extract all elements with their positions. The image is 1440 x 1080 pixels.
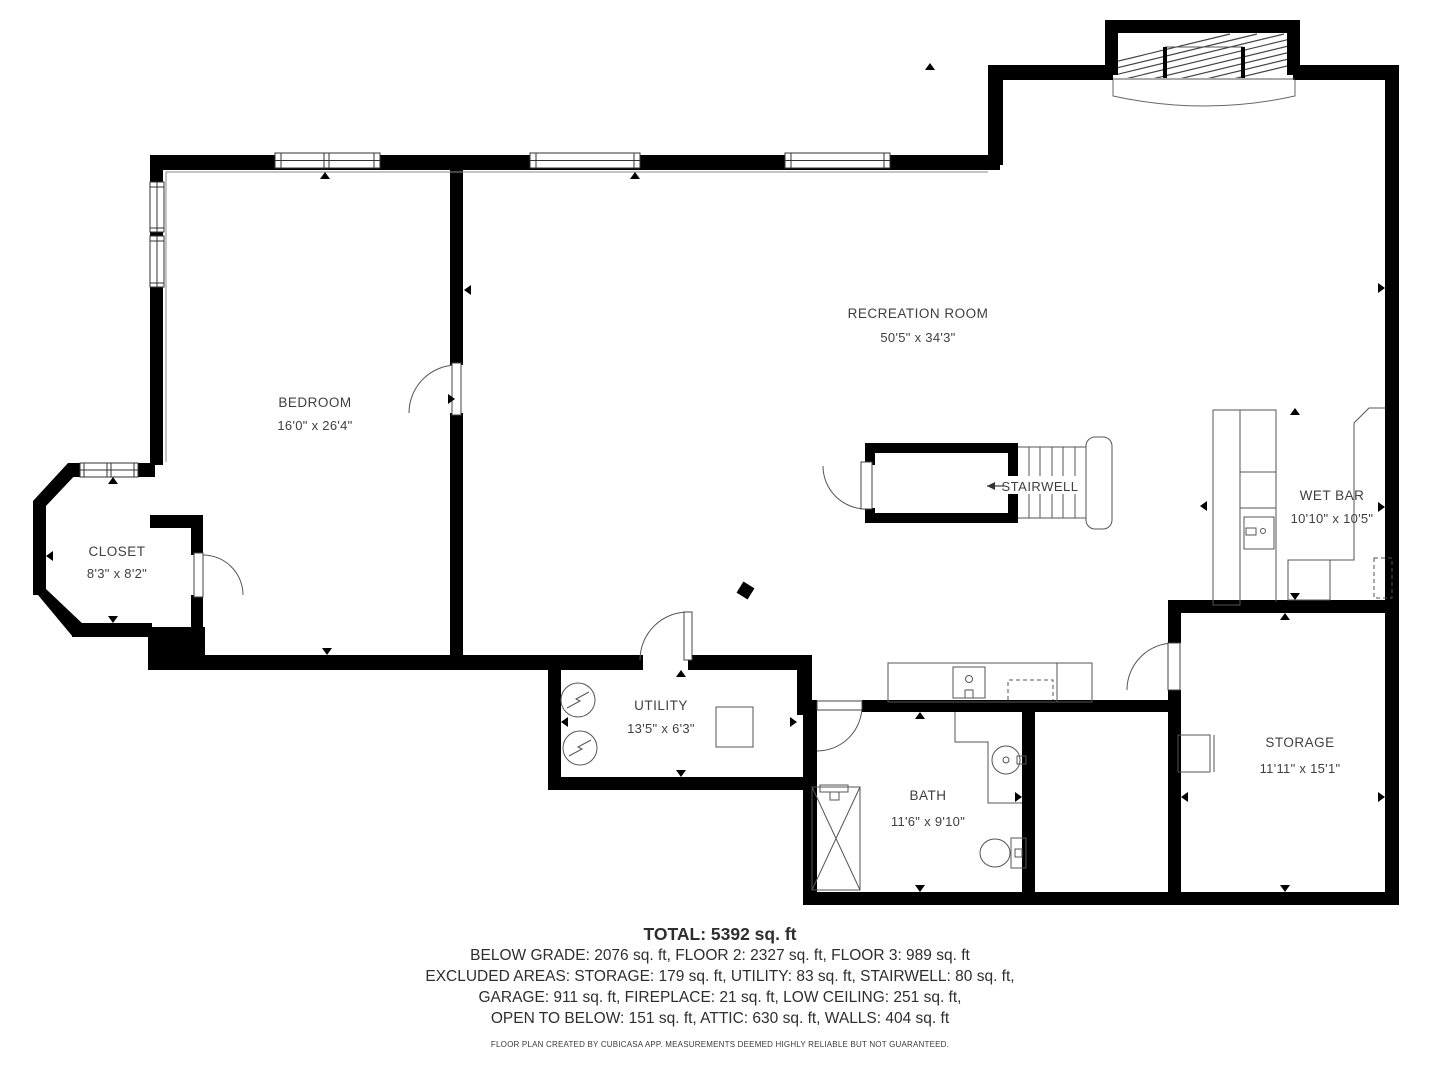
bedroom-door: [409, 363, 461, 415]
bath-name: BATH: [909, 788, 946, 803]
total-area: TOTAL: 5392 sq. ft: [0, 924, 1440, 945]
label-wet-bar: WET BAR 10'10" x 10'5": [1291, 488, 1374, 526]
column-icon: [737, 582, 755, 600]
closet-dims: 8'3" x 8'2": [87, 566, 147, 581]
label-closet: CLOSET 8'3" x 8'2": [87, 544, 147, 581]
stair-direction-arrow-icon: [987, 482, 995, 490]
storage-name: STORAGE: [1265, 735, 1334, 750]
recreation-dims: 50'5" x 34'3": [880, 330, 955, 345]
bath-sink-icon: [992, 746, 1020, 774]
bedroom-name: BEDROOM: [278, 395, 351, 410]
disclaimer: FLOOR PLAN CREATED BY CUBICASA APP. MEAS…: [0, 1040, 1440, 1049]
storage-door: [1127, 643, 1180, 690]
closet-door: [194, 553, 243, 597]
window: [275, 153, 380, 168]
bar-sink-icon: [1244, 517, 1274, 549]
interior-walls: [450, 168, 1018, 670]
bath-door: [817, 701, 862, 751]
window: [150, 236, 164, 287]
stairwell-name: STAIRWELL: [1002, 479, 1079, 494]
floor-plan-drawing: BEDROOM 16'0" x 26'4" CLOSET 8'3" x 8'2"…: [0, 0, 1440, 1080]
bath-dims: 11'6" x 9'10": [891, 814, 965, 829]
area-summary: TOTAL: 5392 sq. ft BELOW GRADE: 2076 sq.…: [0, 924, 1440, 1049]
storage-shelf: [1178, 735, 1214, 772]
label-recreation-room: RECREATION ROOM 50'5" x 34'3": [848, 306, 989, 345]
utility-name: UTILITY: [634, 698, 688, 713]
storage-dims: 11'11" x 15'1": [1260, 761, 1341, 776]
entry-canopy: [1113, 80, 1295, 106]
dishwasher-icon: [1008, 680, 1053, 700]
kitchenette-counter: [888, 663, 1092, 702]
stairwell-door: [823, 462, 872, 509]
wetbar-name: WET BAR: [1300, 488, 1365, 503]
window: [80, 463, 138, 477]
floor-plan-page: BEDROOM 16'0" x 26'4" CLOSET 8'3" x 8'2"…: [0, 0, 1440, 1080]
summary-line-2: EXCLUDED AREAS: STORAGE: 179 sq. ft, UTI…: [0, 966, 1440, 987]
wetbar-dims: 10'10" x 10'5": [1291, 511, 1374, 526]
window: [150, 182, 164, 232]
label-bedroom: BEDROOM 16'0" x 26'4": [277, 395, 352, 433]
windows: [80, 153, 890, 477]
utility-dims: 13'5" x 6'3": [627, 721, 695, 736]
summary-line-1: BELOW GRADE: 2076 sq. ft, FLOOR 2: 2327 …: [0, 945, 1440, 966]
closet-name: CLOSET: [88, 544, 145, 559]
shower-icon: [812, 785, 860, 890]
wet-bar-counters: [1213, 408, 1392, 605]
window: [530, 153, 640, 168]
label-storage: STORAGE 11'11" x 15'1": [1260, 735, 1341, 776]
label-utility: UTILITY 13'5" x 6'3": [627, 698, 695, 736]
recreation-name: RECREATION ROOM: [848, 306, 989, 321]
utility-door: [640, 612, 692, 660]
label-stairwell: STAIRWELL: [987, 476, 1080, 494]
wall-markers: [46, 63, 1385, 892]
summary-line-4: OPEN TO BELOW: 151 sq. ft, ATTIC: 630 sq…: [0, 1008, 1440, 1029]
stair-end-cap: [1086, 437, 1112, 529]
label-bath: BATH 11'6" x 9'10": [891, 788, 965, 829]
bedroom-dims: 16'0" x 26'4": [277, 418, 352, 433]
summary-line-3: GARAGE: 911 sq. ft, FIREPLACE: 21 sq. ft…: [0, 987, 1440, 1008]
appliance-icon: [716, 707, 753, 747]
window: [785, 153, 890, 168]
toilet-icon: [980, 838, 1026, 868]
